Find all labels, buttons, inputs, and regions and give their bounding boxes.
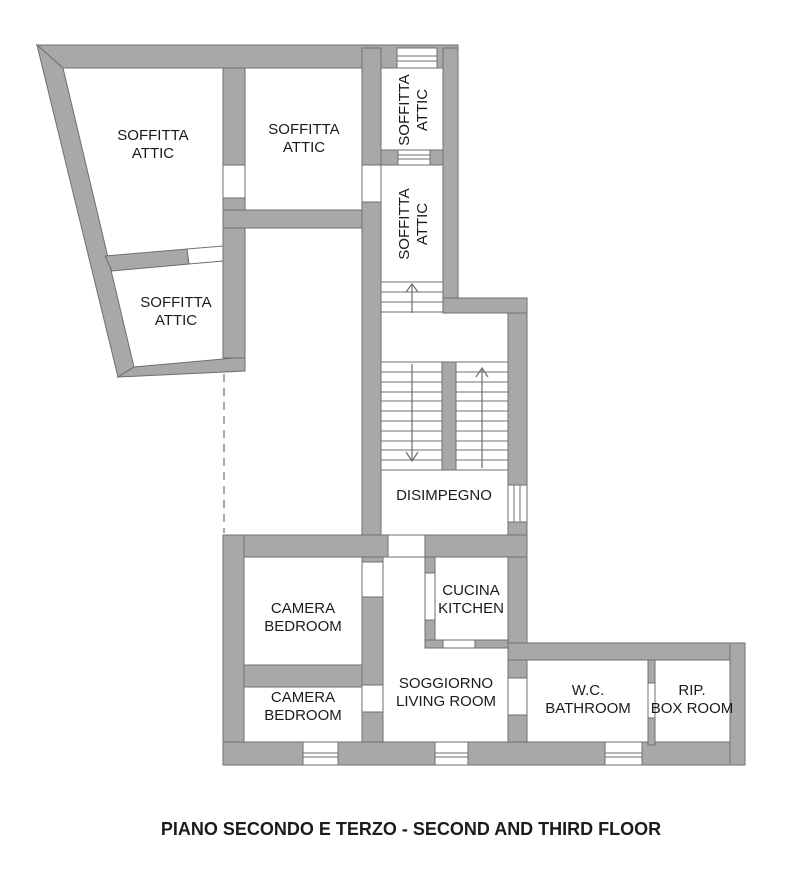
svg-text:SOFFITTA: SOFFITTA	[117, 127, 188, 144]
svg-text:ATTIC: ATTIC	[414, 203, 431, 245]
svg-text:SOFFITTA: SOFFITTA	[396, 188, 413, 259]
wall-topright-vertical	[443, 48, 458, 298]
svg-text:CAMERA: CAMERA	[271, 600, 335, 617]
door-attic-small	[187, 246, 223, 264]
room-label-soffitta-large: SOFFITTA ATTIC	[117, 127, 188, 162]
window-living-room	[435, 742, 468, 765]
svg-text:BOX ROOM: BOX ROOM	[651, 700, 734, 717]
svg-text:KITCHEN: KITCHEN	[438, 600, 504, 617]
svg-text:ATTIC: ATTIC	[132, 145, 174, 162]
svg-text:CAMERA: CAMERA	[271, 689, 335, 706]
room-label-wc: W.C. BATHROOM	[545, 682, 631, 717]
svg-text:LIVING ROOM: LIVING ROOM	[396, 693, 496, 710]
room-label-camera-1: CAMERA BEDROOM	[264, 600, 342, 635]
wall-center-vertical	[362, 48, 381, 557]
wall-wc-top	[508, 643, 745, 660]
wall-bedroom-divider	[244, 665, 362, 687]
wall-bottom	[223, 742, 745, 765]
window-attic-mid	[398, 150, 430, 165]
svg-text:CUCINA: CUCINA	[442, 582, 500, 599]
wall-bedroom-left	[223, 535, 244, 765]
wall-stair-jog	[443, 298, 527, 313]
wall-left-slanted	[37, 45, 134, 377]
wall-top	[37, 45, 458, 68]
floor-plan-page: SOFFITTA ATTIC SOFFITTA ATTIC SOFFITTA A…	[0, 0, 800, 887]
room-label-soffitta-small: SOFFITTA ATTIC	[140, 294, 211, 329]
svg-text:BEDROOM: BEDROOM	[264, 618, 342, 635]
door-bedroom-1	[362, 562, 383, 597]
door-attic-mid	[362, 165, 381, 202]
room-label-soffitta-vertical-upper: SOFFITTA ATTIC	[396, 74, 431, 145]
svg-text:RIP.: RIP.	[678, 682, 705, 699]
room-label-camera-2: CAMERA BEDROOM	[264, 689, 342, 724]
wall-main-horizontal	[223, 535, 527, 557]
stairs-upper-up-arrow	[406, 284, 418, 313]
svg-text:BATHROOM: BATHROOM	[545, 700, 631, 717]
door-kitchen	[425, 573, 435, 620]
svg-text:ATTIC: ATTIC	[283, 139, 325, 156]
wall-attic-bottom-slanted	[118, 357, 245, 377]
wall-attic-divider-slanted	[105, 249, 189, 271]
svg-text:SOFFITTA: SOFFITTA	[396, 74, 413, 145]
window-disimpegno	[508, 485, 527, 522]
room-label-soffitta-vertical-lower: SOFFITTA ATTIC	[396, 188, 431, 259]
wall-stair-spine	[442, 362, 456, 470]
door-living-bathroom	[508, 678, 527, 715]
stairs-upper-flight	[381, 282, 443, 313]
page-title: PIANO SECONDO E TERZO - SECOND AND THIRD…	[161, 819, 661, 839]
svg-text:BEDROOM: BEDROOM	[264, 707, 342, 724]
door-bedroom-2	[362, 685, 383, 712]
window-bathroom	[605, 742, 642, 765]
room-label-disimpegno: DISIMPEGNO	[396, 487, 492, 504]
room-label-soffitta-mid: SOFFITTA ATTIC	[268, 121, 339, 156]
window-bedroom-2	[303, 742, 338, 765]
room-label-soggiorno: SOGGIORNO LIVING ROOM	[396, 675, 496, 710]
room-label-rip: RIP. BOX ROOM	[651, 682, 734, 717]
door-kitchen-pass	[443, 640, 475, 648]
stairs-down-arrow	[406, 364, 418, 461]
stairs-up-arrow	[476, 368, 488, 468]
svg-text:SOFFITTA: SOFFITTA	[268, 121, 339, 138]
room-label-cucina: CUCINA KITCHEN	[438, 582, 504, 617]
door-disimpegno-living	[388, 535, 425, 557]
svg-text:SOGGIORNO: SOGGIORNO	[399, 675, 493, 692]
svg-text:ATTIC: ATTIC	[155, 312, 197, 329]
svg-text:ATTIC: ATTIC	[414, 89, 431, 131]
svg-text:W.C.: W.C.	[572, 682, 605, 699]
svg-text:DISIMPEGNO: DISIMPEGNO	[396, 487, 492, 504]
svg-text:SOFFITTA: SOFFITTA	[140, 294, 211, 311]
floor-plan-drawing: SOFFITTA ATTIC SOFFITTA ATTIC SOFFITTA A…	[0, 0, 800, 887]
door-attic-large	[223, 165, 245, 198]
window-top-attic	[397, 48, 437, 68]
wall-tallroom-top	[223, 210, 381, 228]
